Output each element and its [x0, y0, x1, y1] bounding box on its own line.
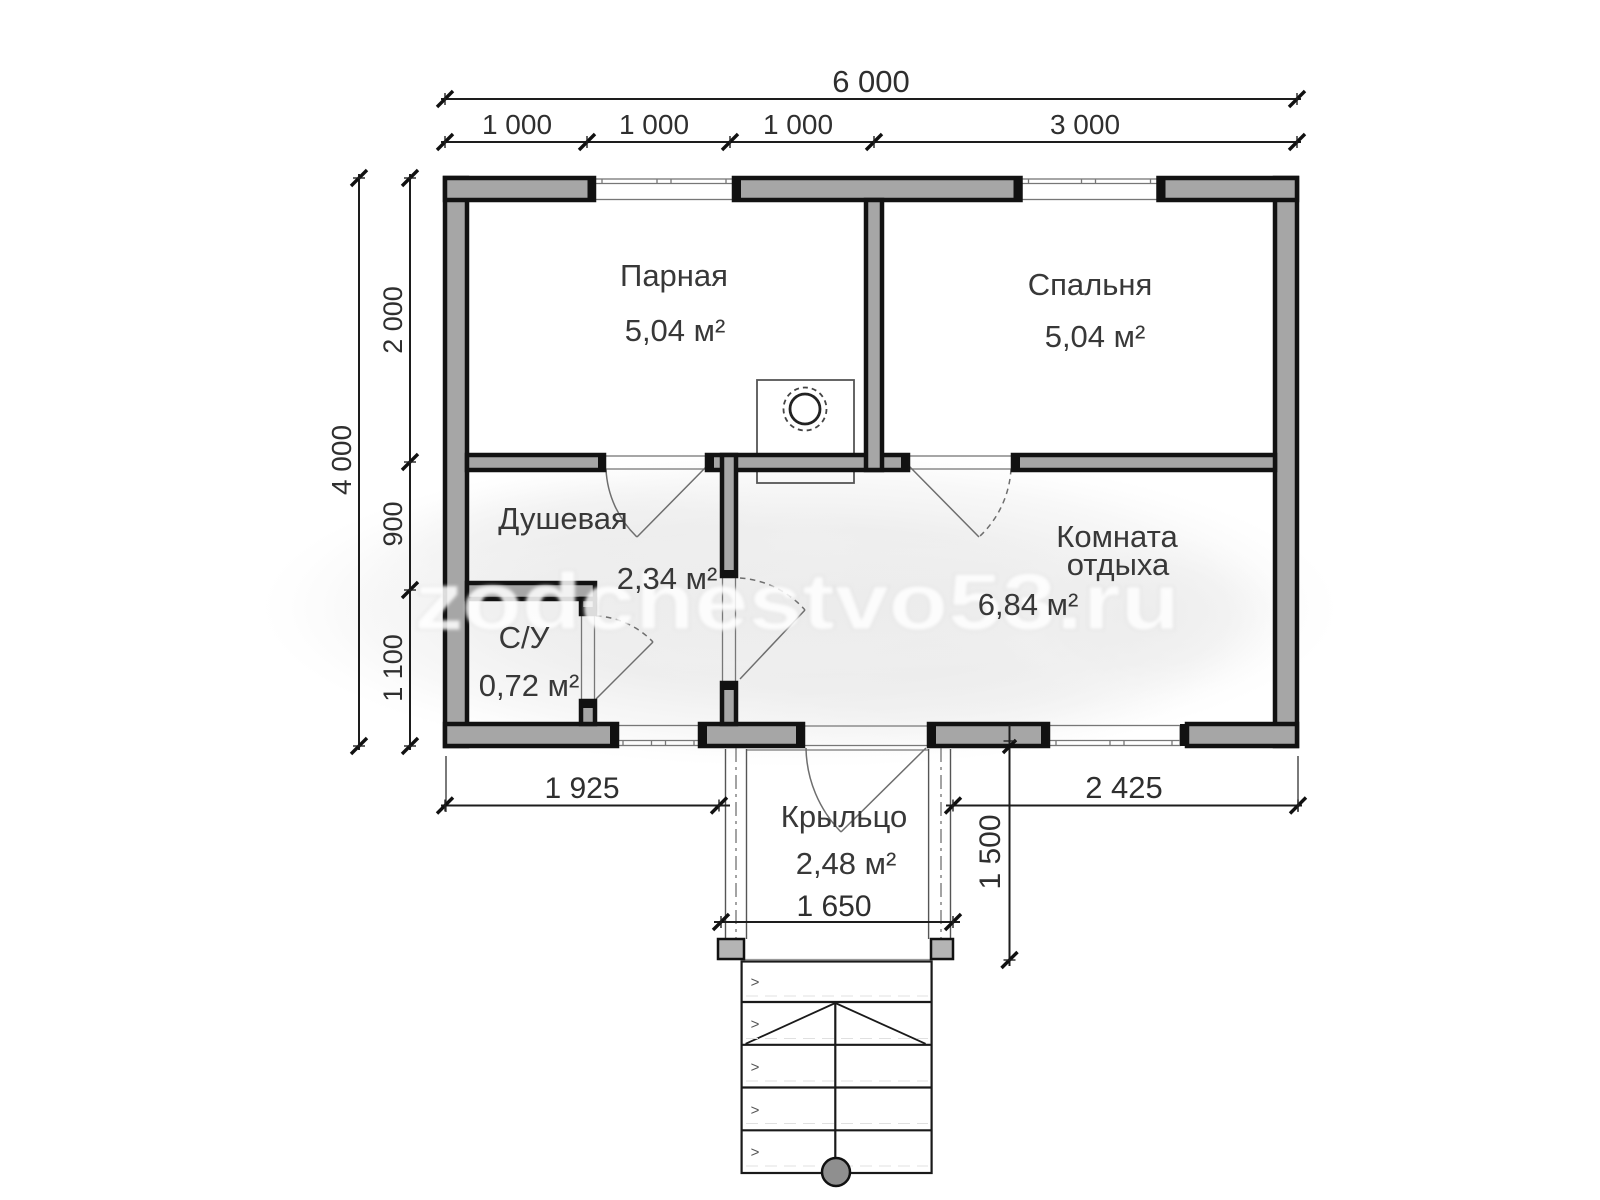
svg-text:>: > [751, 1059, 760, 1076]
svg-text:1 100: 1 100 [378, 634, 408, 702]
svg-text:>: > [751, 1144, 760, 1161]
svg-text:Крыльцо: Крыльцо [781, 799, 907, 834]
svg-text:2 425: 2 425 [1085, 770, 1163, 805]
svg-text:5,04 м²: 5,04 м² [1045, 319, 1146, 354]
svg-text:1 500: 1 500 [974, 814, 1007, 889]
svg-text:0,72 м²: 0,72 м² [479, 668, 580, 703]
svg-text:4 000: 4 000 [326, 425, 357, 495]
svg-text:1 000: 1 000 [763, 109, 833, 140]
svg-text:>: > [751, 1102, 760, 1119]
svg-text:2,48 м²: 2,48 м² [796, 846, 897, 881]
svg-text:отдыха: отдыха [1067, 547, 1170, 582]
svg-text:5,04 м²: 5,04 м² [625, 313, 726, 348]
svg-text:С/У: С/У [499, 620, 550, 655]
svg-text:2,34 м²: 2,34 м² [617, 561, 718, 596]
svg-text:Спальня: Спальня [1028, 267, 1153, 302]
svg-text:6,84 м²: 6,84 м² [978, 587, 1079, 622]
svg-text:900: 900 [378, 501, 408, 546]
svg-text:1 925: 1 925 [544, 772, 619, 805]
svg-text:1 000: 1 000 [619, 109, 689, 140]
svg-text:1 000: 1 000 [482, 109, 552, 140]
svg-text:2 000: 2 000 [378, 286, 408, 354]
svg-text:3 000: 3 000 [1050, 109, 1120, 140]
svg-text:>: > [751, 1016, 760, 1033]
svg-text:Душевая: Душевая [498, 501, 627, 536]
svg-text:6 000: 6 000 [832, 64, 910, 99]
svg-text:>: > [751, 974, 760, 991]
svg-text:Парная: Парная [620, 258, 728, 293]
svg-text:1 650: 1 650 [796, 890, 871, 923]
